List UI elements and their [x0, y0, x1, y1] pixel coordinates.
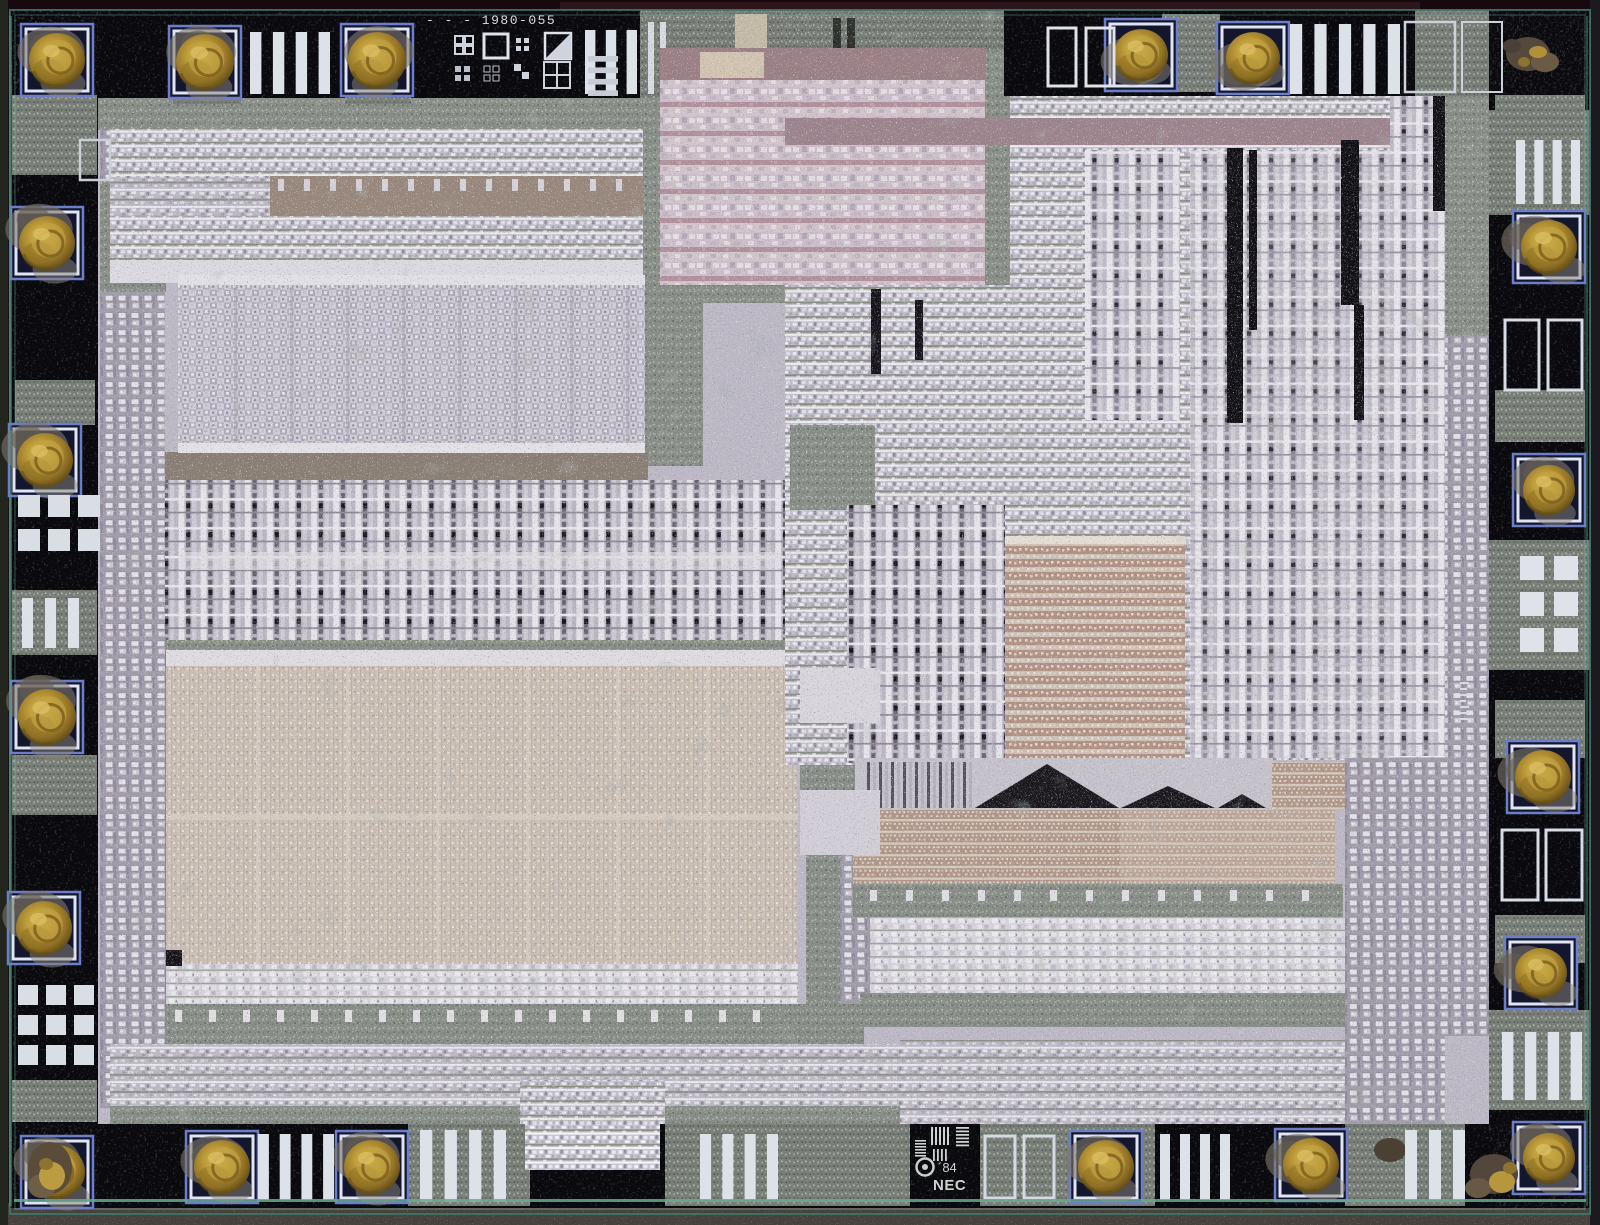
svg-text:NEC: NEC: [933, 1177, 966, 1194]
svg-text:- - - 1980-055: - - - 1980-055: [426, 13, 556, 28]
svg-text:´84: ´84: [938, 1160, 957, 1175]
